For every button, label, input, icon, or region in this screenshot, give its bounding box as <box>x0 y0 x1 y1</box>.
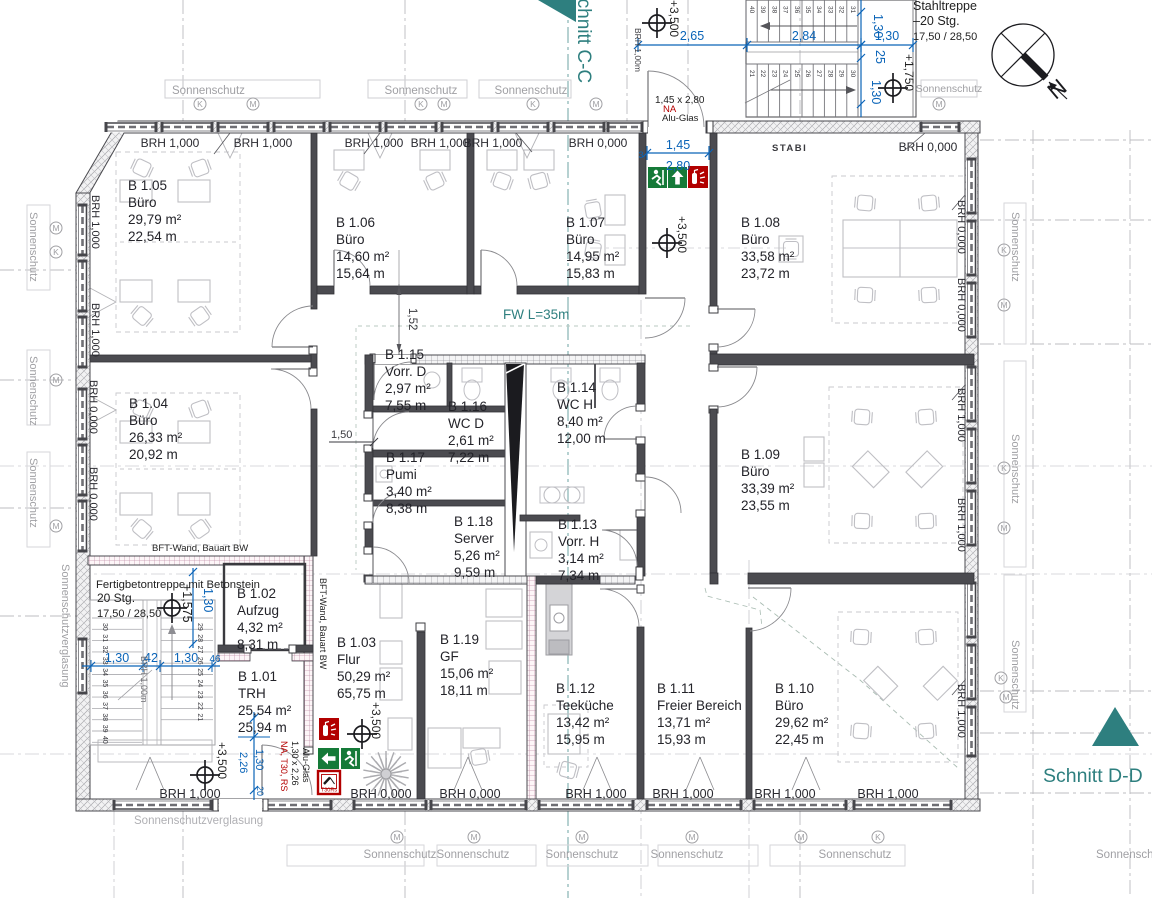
svg-text:Büro: Büro <box>128 195 157 210</box>
svg-text:2,84: 2,84 <box>792 29 816 43</box>
svg-text:29,62 m²: 29,62 m² <box>775 715 829 730</box>
svg-text:B 1.18: B 1.18 <box>454 514 493 529</box>
svg-text:34: 34 <box>815 6 822 14</box>
svg-text:30: 30 <box>849 70 856 78</box>
svg-text:BRH 1,000: BRH 1,000 <box>159 787 220 801</box>
svg-text:23: 23 <box>196 691 203 699</box>
svg-text:BRH 1,000: BRH 1,000 <box>89 195 101 249</box>
svg-text:1,30: 1,30 <box>201 588 215 612</box>
svg-text:15,83 m: 15,83 m <box>566 266 615 281</box>
svg-text:BRH 0,000: BRH 0,000 <box>899 140 958 154</box>
svg-text:3,14 m²: 3,14 m² <box>558 551 604 566</box>
svg-text:8,31 m: 8,31 m <box>237 637 278 652</box>
svg-text:B 1.08: B 1.08 <box>741 215 780 230</box>
svg-text:21: 21 <box>196 713 203 721</box>
svg-text:25,54 m²: 25,54 m² <box>238 703 292 718</box>
svg-text:Sonnenschutz: Sonnenschutz <box>819 849 892 861</box>
svg-text:K: K <box>998 673 1004 683</box>
svg-text:Aufzug: Aufzug <box>237 603 279 618</box>
svg-text:36: 36 <box>793 6 800 14</box>
svg-text:20: 20 <box>255 786 265 796</box>
svg-text:1,30: 1,30 <box>871 14 885 38</box>
svg-text:FW L=35m: FW L=35m <box>503 307 569 322</box>
svg-text:BRH 0,000: BRH 0,000 <box>87 467 99 521</box>
svg-text:13,71 m²: 13,71 m² <box>657 715 711 730</box>
svg-text:STABI: STABI <box>772 143 807 154</box>
svg-text:B 1.07: B 1.07 <box>566 215 605 230</box>
svg-text:14,95 m²: 14,95 m² <box>566 249 620 264</box>
svg-text:B 1.10: B 1.10 <box>775 681 814 696</box>
svg-text:Sonnenschutz: Sonnenschutz <box>27 458 39 528</box>
svg-text:Sonnenschutz: Sonnenschutz <box>364 849 437 861</box>
svg-text:3,40 m²: 3,40 m² <box>386 484 432 499</box>
svg-text:Pumi: Pumi <box>386 467 417 482</box>
svg-text:Vorr. D: Vorr. D <box>385 364 427 379</box>
svg-text:Sonnenschutz: Sonnenschutz <box>1009 640 1021 710</box>
svg-text:K: K <box>1001 245 1007 255</box>
svg-text:2,65: 2,65 <box>680 29 704 43</box>
svg-text:15,64 m: 15,64 m <box>336 266 385 281</box>
svg-text:31: 31 <box>101 634 108 642</box>
svg-text:39: 39 <box>101 725 108 733</box>
svg-text:Sonnenschutz: Sonnenschutz <box>27 356 39 426</box>
svg-text:38: 38 <box>770 6 777 14</box>
svg-text:20 Stg.: 20 Stg. <box>97 591 135 605</box>
svg-text:2,61 m²: 2,61 m² <box>448 433 494 448</box>
svg-text:BRH 1,000: BRH 1,000 <box>857 787 918 801</box>
svg-text:T30Rs: T30Rs <box>321 788 337 794</box>
svg-text:28: 28 <box>826 70 833 78</box>
svg-text:17,50 / 28,50: 17,50 / 28,50 <box>913 31 977 43</box>
svg-text:27: 27 <box>815 70 822 78</box>
svg-text:21: 21 <box>748 70 755 78</box>
svg-text:25: 25 <box>793 70 800 78</box>
svg-text:23,55 m: 23,55 m <box>741 498 790 513</box>
svg-text:36: 36 <box>101 691 108 699</box>
svg-text:K: K <box>530 99 536 109</box>
svg-text:15,93 m: 15,93 m <box>657 732 706 747</box>
svg-text:1,30 x 2,26: 1,30 x 2,26 <box>290 741 300 786</box>
svg-text:WC D: WC D <box>448 416 484 431</box>
svg-text:5,26 m²: 5,26 m² <box>454 548 500 563</box>
svg-text:37: 37 <box>101 702 108 710</box>
svg-text:24: 24 <box>196 680 203 688</box>
svg-text:3: 3 <box>638 150 643 160</box>
svg-text:20,92 m: 20,92 m <box>129 447 178 462</box>
svg-text:30: 30 <box>101 623 108 631</box>
svg-text:BRH 1,000: BRH 1,000 <box>955 388 967 442</box>
svg-text:26: 26 <box>804 70 811 78</box>
svg-text:25,94 m: 25,94 m <box>238 720 287 735</box>
svg-text:33: 33 <box>826 6 833 14</box>
svg-text:24: 24 <box>782 70 789 78</box>
svg-text:22,45 m: 22,45 m <box>775 732 824 747</box>
svg-text:35: 35 <box>101 680 108 688</box>
svg-text:B 1.01: B 1.01 <box>238 669 277 684</box>
svg-text:35: 35 <box>804 6 811 14</box>
svg-text:Büro: Büro <box>741 464 770 479</box>
svg-text:M: M <box>1000 300 1007 310</box>
svg-text:2,97 m²: 2,97 m² <box>385 381 431 396</box>
svg-text:B 1.05: B 1.05 <box>128 178 167 193</box>
svg-text:15,06 m²: 15,06 m² <box>440 666 494 681</box>
svg-text:7,22 m: 7,22 m <box>448 450 489 465</box>
svg-text:BRH 1,000: BRH 1,000 <box>234 136 293 150</box>
svg-text:NA, T30, RS: NA, T30, RS <box>279 741 289 791</box>
svg-text:Server: Server <box>454 531 494 546</box>
svg-text:BFT-Wand, Bauart BW: BFT-Wand, Bauart BW <box>152 543 248 554</box>
svg-text:22: 22 <box>196 702 203 710</box>
svg-text:33,39 m²: 33,39 m² <box>741 481 795 496</box>
svg-text:Sonnenschutz: Sonnenschutz <box>437 849 510 861</box>
svg-text:8,40 m²: 8,40 m² <box>557 414 603 429</box>
svg-text:+3,500: +3,500 <box>675 216 689 253</box>
svg-text:1,30: 1,30 <box>105 651 129 665</box>
svg-text:Sonnenschutz: Sonnenschutz <box>916 83 983 95</box>
svg-text:Sonnenschutz: Sonnenschutz <box>1009 212 1021 282</box>
svg-text:Stahltreppe: Stahltreppe <box>913 0 977 13</box>
svg-text:BRH 1,000: BRH 1,000 <box>754 787 815 801</box>
svg-text:29,79 m²: 29,79 m² <box>128 212 182 227</box>
svg-text:12,00 m: 12,00 m <box>557 431 606 446</box>
svg-text:BRH 1,000: BRH 1,000 <box>141 136 200 150</box>
svg-text:Vorr. H: Vorr. H <box>558 534 599 549</box>
svg-text:Teeküche: Teeküche <box>556 698 614 713</box>
svg-text:4,32 m²: 4,32 m² <box>237 620 283 635</box>
svg-text:Sonnenschutz: Sonnenschutz <box>495 85 568 97</box>
svg-text:39: 39 <box>759 6 766 14</box>
svg-text:+3,500: +3,500 <box>369 702 383 739</box>
svg-text:M: M <box>592 99 599 109</box>
svg-text:22,54 m: 22,54 m <box>128 229 177 244</box>
svg-text:BRH 1,000: BRH 1,000 <box>955 684 967 738</box>
svg-text:Sonnenschutz: Sonnenschutz <box>172 85 245 97</box>
svg-text:BRH 1,000: BRH 1,000 <box>345 136 404 150</box>
svg-text:+3,500: +3,500 <box>215 742 229 779</box>
svg-text:26,33 m²: 26,33 m² <box>129 430 183 445</box>
svg-text:25: 25 <box>873 50 887 64</box>
svg-text:46: 46 <box>209 654 221 665</box>
svg-text:B 1.16: B 1.16 <box>448 399 487 414</box>
svg-text:M: M <box>470 832 477 842</box>
svg-text:BRH 1,000: BRH 1,000 <box>89 303 101 357</box>
svg-text:Sonnenschutz: Sonnenschutz <box>546 849 619 861</box>
svg-text:M: M <box>393 832 400 842</box>
svg-text:Sonnenschutzverglasung: Sonnenschutzverglasung <box>134 815 263 827</box>
svg-text:K: K <box>197 99 203 109</box>
svg-text:TRH: TRH <box>238 686 266 701</box>
svg-text:B 1.04: B 1.04 <box>129 396 169 411</box>
svg-text:2,26: 2,26 <box>237 752 249 773</box>
svg-text:K: K <box>1001 463 1007 473</box>
svg-text:Sonnenschutz: Sonnenschutz <box>1096 849 1152 861</box>
svg-text:M: M <box>797 832 804 842</box>
svg-text:B 1.19: B 1.19 <box>440 632 479 647</box>
svg-text:B 1.13: B 1.13 <box>558 517 597 532</box>
svg-text:1,50: 1,50 <box>331 429 352 441</box>
svg-text:Sonnenschutz: Sonnenschutz <box>1009 434 1021 504</box>
svg-text:28: 28 <box>196 634 203 642</box>
svg-text:GF: GF <box>440 649 459 664</box>
svg-text:M: M <box>249 99 256 109</box>
svg-text:Sonnenschutz: Sonnenschutz <box>385 85 458 97</box>
svg-text:Sonnenschutz: Sonnenschutz <box>651 849 724 861</box>
svg-text:31: 31 <box>849 6 856 14</box>
svg-text:+3,500: +3,500 <box>667 0 681 37</box>
svg-text:7,34 m: 7,34 m <box>558 568 599 583</box>
svg-text:B 1.12: B 1.12 <box>556 681 595 696</box>
svg-text:B 1.15: B 1.15 <box>385 347 424 362</box>
svg-text:Büro: Büro <box>336 232 365 247</box>
svg-text:40: 40 <box>101 736 108 744</box>
svg-text:Büro: Büro <box>775 698 804 713</box>
svg-text:17,50 / 28,50: 17,50 / 28,50 <box>97 608 161 620</box>
svg-text:25: 25 <box>196 668 203 676</box>
svg-text:Schnitt D-D: Schnitt D-D <box>1043 765 1143 787</box>
svg-text:Büro: Büro <box>566 232 595 247</box>
svg-text:23,72 m: 23,72 m <box>741 266 790 281</box>
svg-text:Sonnenschutz: Sonnenschutz <box>27 212 39 282</box>
svg-text:38: 38 <box>101 713 108 721</box>
svg-text:32: 32 <box>838 6 845 14</box>
svg-text:BRH 0,000: BRH 0,000 <box>350 787 411 801</box>
svg-text:Alu-Glas: Alu-Glas <box>662 113 699 124</box>
svg-text:Büro: Büro <box>129 413 158 428</box>
svg-text:M: M <box>52 521 59 531</box>
svg-text:22: 22 <box>759 70 766 78</box>
svg-text:1,30: 1,30 <box>869 80 883 104</box>
svg-text:BRH 1,000: BRH 1,000 <box>411 136 470 150</box>
svg-text:1,30: 1,30 <box>253 749 265 770</box>
svg-text:Sonnenschutzverglasung: Sonnenschutzverglasung <box>59 564 71 688</box>
svg-text:K: K <box>875 832 881 842</box>
svg-text:34: 34 <box>101 668 108 676</box>
svg-text:BRH 1,000: BRH 1,000 <box>955 498 967 552</box>
svg-text:M: M <box>52 223 59 233</box>
svg-text:–20 Stg.: –20 Stg. <box>913 14 960 28</box>
svg-text:37: 37 <box>782 6 789 14</box>
svg-text:M: M <box>578 832 585 842</box>
svg-text:B 1.06: B 1.06 <box>336 215 375 230</box>
svg-text:K: K <box>53 247 59 257</box>
svg-text:WC H: WC H <box>557 397 593 412</box>
svg-text:Büro: Büro <box>741 232 770 247</box>
svg-text:BRH 0,000: BRH 0,000 <box>955 200 967 254</box>
svg-text:BRH 0,000: BRH 0,000 <box>87 380 99 434</box>
svg-text:BRH 1,000: BRH 1,000 <box>652 787 713 801</box>
svg-text:9,59 m: 9,59 m <box>454 565 495 580</box>
svg-text:23: 23 <box>770 70 777 78</box>
svg-text:Fertigbetontreppe mit Betonste: Fertigbetontreppe mit Betonstein <box>96 579 260 591</box>
svg-text:1,52: 1,52 <box>406 308 418 330</box>
svg-text:BRH 1,000: BRH 1,000 <box>464 136 523 150</box>
svg-text:Flur: Flur <box>337 652 361 667</box>
svg-text:18,11 m: 18,11 m <box>440 683 488 698</box>
svg-text:M: M <box>1000 523 1007 533</box>
svg-text:B 1.03: B 1.03 <box>337 635 376 650</box>
svg-text:1,45: 1,45 <box>666 138 690 152</box>
svg-text:14,60 m²: 14,60 m² <box>336 249 390 264</box>
svg-text:Alu-Glas: Alu-Glas <box>301 748 311 783</box>
svg-text:65,75 m: 65,75 m <box>337 686 386 701</box>
svg-text:Freier Bereich: Freier Bereich <box>657 698 742 713</box>
svg-text:29: 29 <box>838 70 845 78</box>
svg-text:BRH 0,000: BRH 0,000 <box>955 278 967 332</box>
svg-text:40: 40 <box>748 6 755 14</box>
svg-text:8,38 m: 8,38 m <box>386 501 427 516</box>
svg-text:B 1.17: B 1.17 <box>386 450 425 465</box>
svg-text:2,80: 2,80 <box>666 159 690 173</box>
svg-text:33,58 m²: 33,58 m² <box>741 249 795 264</box>
svg-text:M: M <box>688 832 695 842</box>
svg-text:+1,750: +1,750 <box>902 54 916 91</box>
svg-text:15,95 m: 15,95 m <box>556 732 605 747</box>
svg-text:M: M <box>52 375 59 385</box>
svg-text:BRH 1,000: BRH 1,000 <box>565 787 626 801</box>
svg-text:BFT-Wand, Bauart BW: BFT-Wand, Bauart BW <box>318 578 328 670</box>
svg-text:1,30: 1,30 <box>174 651 198 665</box>
svg-text:BRH 1,00m: BRH 1,00m <box>139 656 149 703</box>
svg-text:K: K <box>418 99 424 109</box>
svg-text:BRH 1,00m: BRH 1,00m <box>633 28 643 72</box>
svg-text:50,29 m²: 50,29 m² <box>337 669 391 684</box>
svg-text:BRH 0,000: BRH 0,000 <box>439 787 500 801</box>
svg-text:B 1.09: B 1.09 <box>741 447 780 462</box>
svg-text:B 1.14: B 1.14 <box>557 380 597 395</box>
svg-text:M: M <box>1002 692 1009 702</box>
svg-text:B 1.11: B 1.11 <box>657 681 695 696</box>
svg-text:13,42 m²: 13,42 m² <box>556 715 610 730</box>
svg-text:29: 29 <box>196 623 203 631</box>
svg-text:Schnitt C-C: Schnitt C-C <box>573 0 594 83</box>
svg-text:M: M <box>440 99 447 109</box>
svg-text:7,55 m: 7,55 m <box>385 398 426 413</box>
svg-text:BRH 0,000: BRH 0,000 <box>569 136 628 150</box>
svg-text:M: M <box>935 99 942 109</box>
